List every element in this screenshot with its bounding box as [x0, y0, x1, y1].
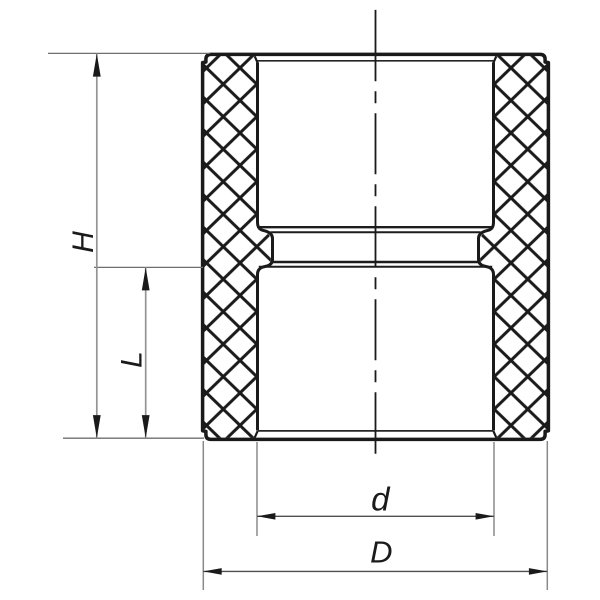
svg-text:D: D [370, 535, 392, 570]
svg-text:L: L [116, 351, 149, 368]
svg-text:d: d [371, 481, 391, 518]
svg-text:H: H [67, 231, 100, 253]
